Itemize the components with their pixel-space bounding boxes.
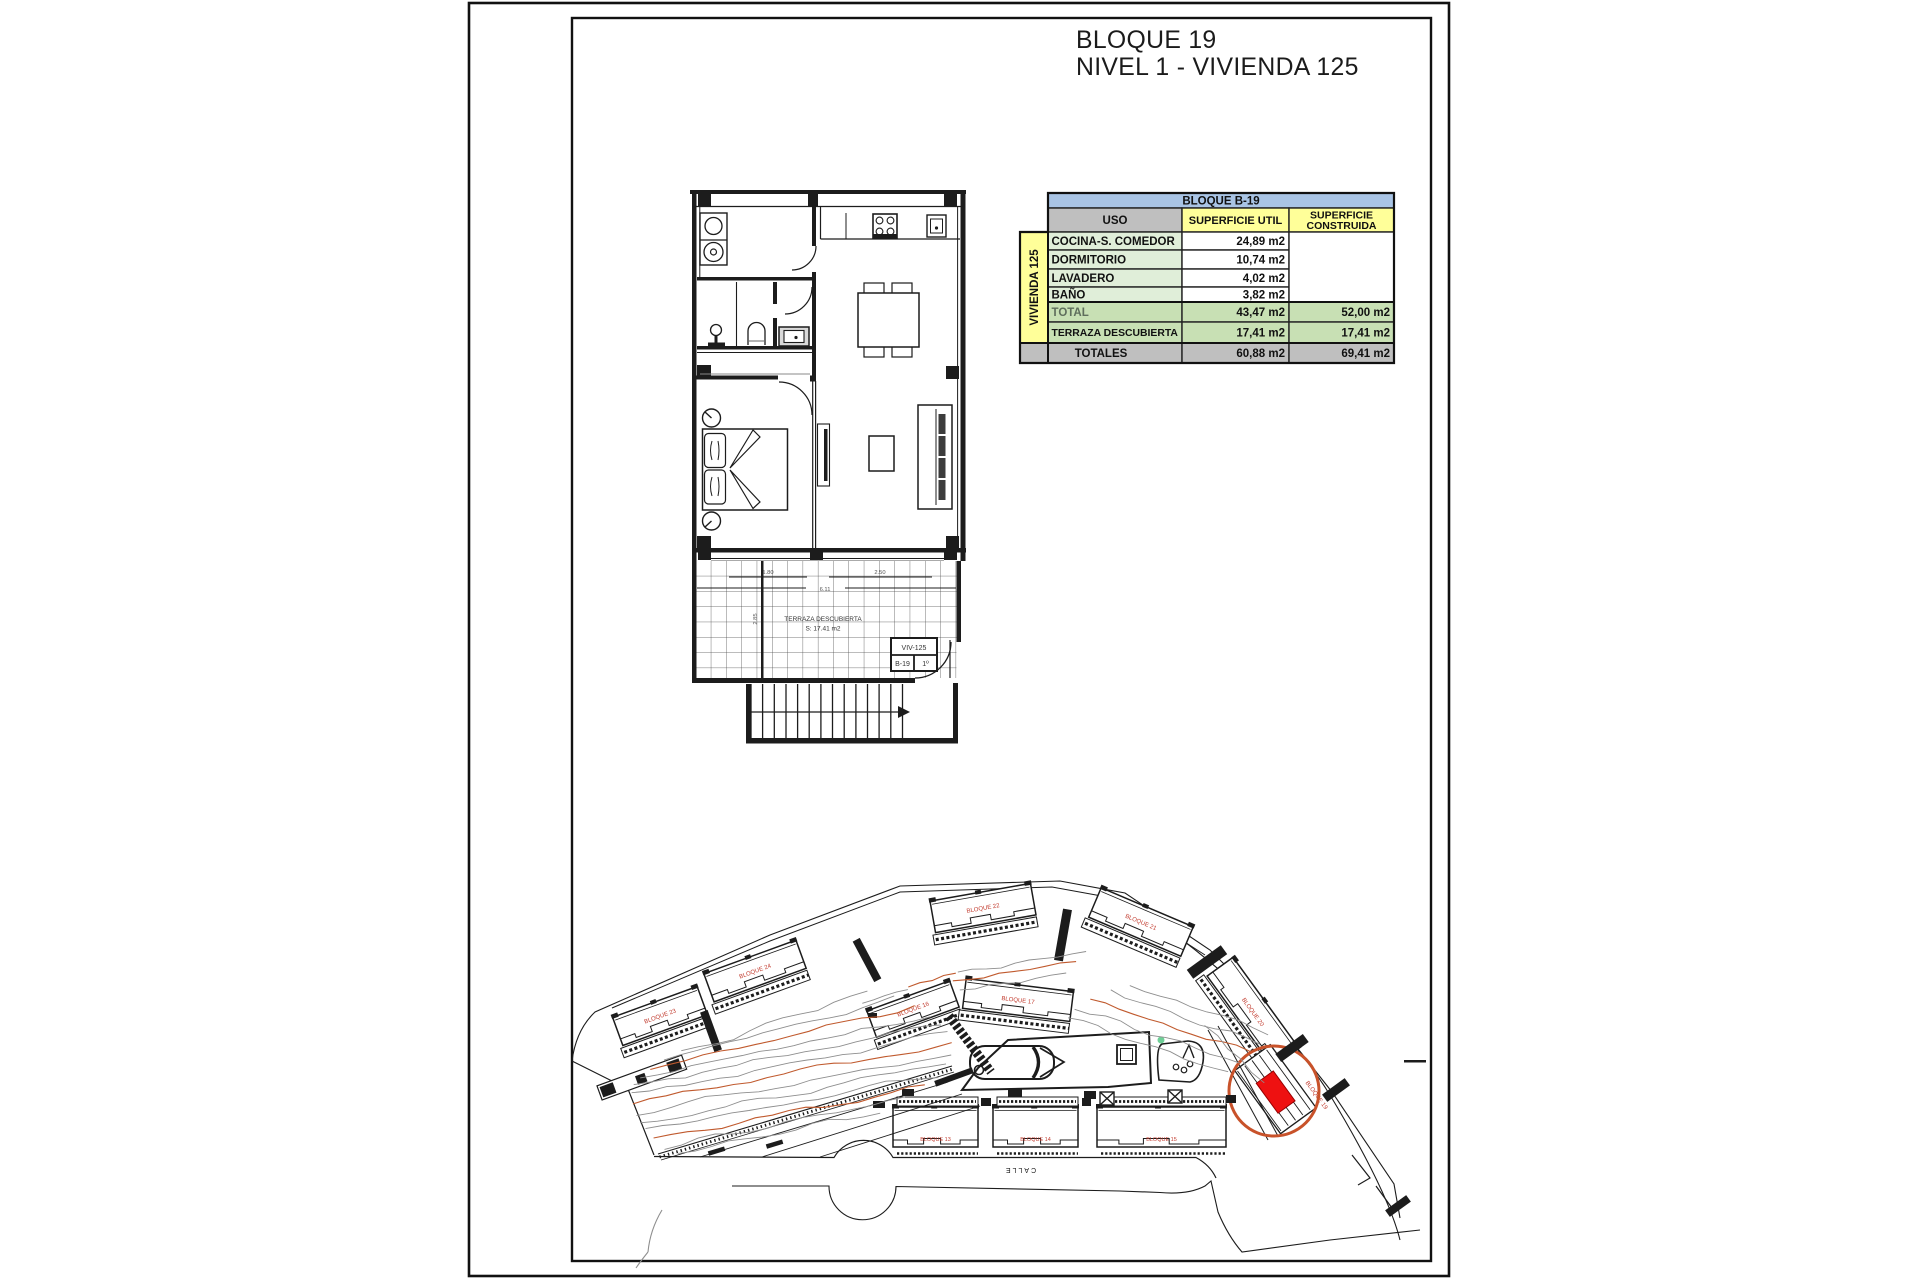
svg-text:69,41 m2: 69,41 m2 <box>1341 348 1390 360</box>
svg-text:TERRAZA DESCUBIERTA: TERRAZA DESCUBIERTA <box>1052 328 1179 339</box>
svg-text:USO: USO <box>1103 215 1128 227</box>
svg-text:43,47 m2: 43,47 m2 <box>1236 307 1285 319</box>
svg-text:24,89 m2: 24,89 m2 <box>1236 236 1285 248</box>
svg-text:COCINA-S. COMEDOR: COCINA-S. COMEDOR <box>1052 236 1176 248</box>
svg-text:TERRAZA DESCUBIERTA: TERRAZA DESCUBIERTA <box>784 616 862 623</box>
svg-text:52,00 m2: 52,00 m2 <box>1341 307 1390 319</box>
svg-text:TOTALES: TOTALES <box>1075 348 1128 360</box>
svg-text:BLOQUE 13: BLOQUE 13 <box>920 1137 951 1143</box>
svg-text:LAVADERO: LAVADERO <box>1052 273 1115 285</box>
svg-text:TOTAL: TOTAL <box>1052 307 1089 319</box>
svg-text:DORMITORIO: DORMITORIO <box>1052 255 1127 267</box>
svg-text:BLOQUE B-19: BLOQUE B-19 <box>1182 196 1259 208</box>
svg-text:1º: 1º <box>922 661 929 668</box>
svg-text:60,88 m2: 60,88 m2 <box>1236 348 1285 360</box>
svg-text:BLOQUE 15: BLOQUE 15 <box>1146 1137 1177 1143</box>
svg-text:2.50: 2.50 <box>874 570 885 576</box>
svg-text:17,41 m2: 17,41 m2 <box>1236 328 1285 340</box>
svg-text:VIVIENDA 125: VIVIENDA 125 <box>1029 249 1041 326</box>
svg-text:CALLE: CALLE <box>1004 1166 1036 1173</box>
svg-text:CONSTRUIDA: CONSTRUIDA <box>1307 220 1377 232</box>
svg-text:6.11: 6.11 <box>820 587 831 593</box>
svg-text:4,02 m2: 4,02 m2 <box>1243 273 1285 285</box>
svg-text:10,74 m2: 10,74 m2 <box>1236 255 1285 267</box>
svg-text:B-19: B-19 <box>895 661 910 668</box>
svg-text:SUPERFICIE UTIL: SUPERFICIE UTIL <box>1189 215 1283 227</box>
svg-text:BAÑO: BAÑO <box>1052 289 1086 302</box>
svg-text:BLOQUE 14: BLOQUE 14 <box>1020 1137 1051 1143</box>
svg-text:S: 17.41 m2: S: 17.41 m2 <box>805 626 840 633</box>
svg-text:17,41 m2: 17,41 m2 <box>1341 328 1390 340</box>
svg-text:3,82 m2: 3,82 m2 <box>1243 290 1285 302</box>
svg-text:1.80: 1.80 <box>762 570 773 576</box>
svg-text:VIV-125: VIV-125 <box>902 645 927 652</box>
svg-text:2.85: 2.85 <box>753 613 759 624</box>
